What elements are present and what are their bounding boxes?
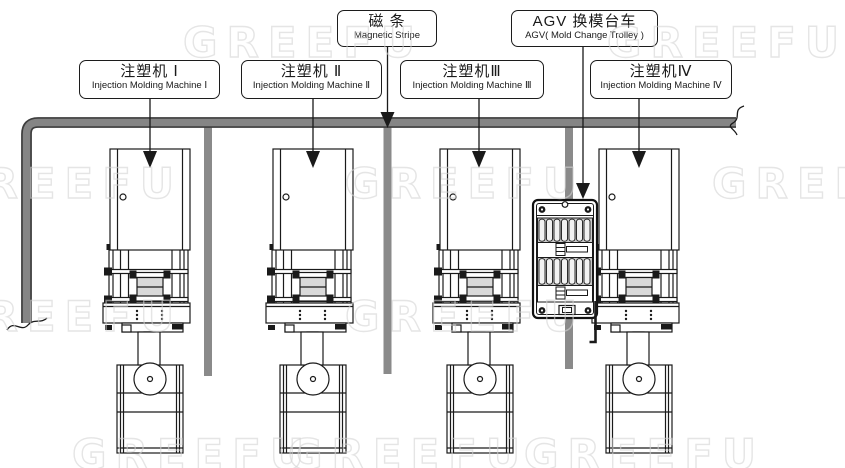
label-box-agv: AGV 换模台车 AGV( Mold Change Trolley )	[511, 10, 658, 47]
injection-molding-machine-4	[592, 149, 679, 453]
machine-3-title: 注塑机Ⅲ	[401, 61, 543, 80]
agv-roller-deck-top	[538, 218, 593, 243]
label-box-machine-1: 注塑机 Ⅰ Injection Molding Machine Ⅰ	[79, 60, 220, 99]
machine-3-subtitle: Injection Molding Machine Ⅲ	[401, 80, 543, 91]
injection-molding-machine-2	[266, 149, 353, 453]
magnetic-stripe-title: 磁 条	[338, 11, 436, 30]
agv-guide-sensor	[562, 202, 568, 208]
label-box-machine-4: 注塑机Ⅳ Injection Molding Machine Ⅳ	[590, 60, 732, 99]
label-box-machine-2: 注塑机 Ⅱ Injection Molding Machine Ⅱ	[241, 60, 382, 99]
agv-roller-deck-bottom	[538, 258, 593, 286]
machine-1-title: 注塑机 Ⅰ	[80, 61, 219, 80]
machine-2-title: 注塑机 Ⅱ	[242, 61, 381, 80]
machine-4-title: 注塑机Ⅳ	[591, 61, 731, 80]
machine-2-subtitle: Injection Molding Machine Ⅱ	[242, 80, 381, 91]
injection-molding-machine-3	[433, 149, 520, 453]
label-box-magnetic-stripe: 磁 条 Magnetic Stripe	[337, 10, 437, 47]
magnetic-stripe-subtitle: Magnetic Stripe	[338, 30, 436, 41]
injection-molding-machine-1	[103, 149, 190, 453]
arrow-magnetic-stripe	[381, 47, 395, 128]
label-box-machine-3: 注塑机Ⅲ Injection Molding Machine Ⅲ	[400, 60, 544, 99]
machine-4-subtitle: Injection Molding Machine Ⅳ	[591, 80, 731, 91]
agv-title: AGV 换模台车	[512, 11, 657, 30]
agv-subtitle: AGV( Mold Change Trolley )	[512, 30, 657, 41]
machine-1-subtitle: Injection Molding Machine Ⅰ	[80, 80, 219, 91]
diagram-canvas: 磁 条 Magnetic Stripe AGV 换模台车 AGV( Mold C…	[0, 0, 845, 468]
